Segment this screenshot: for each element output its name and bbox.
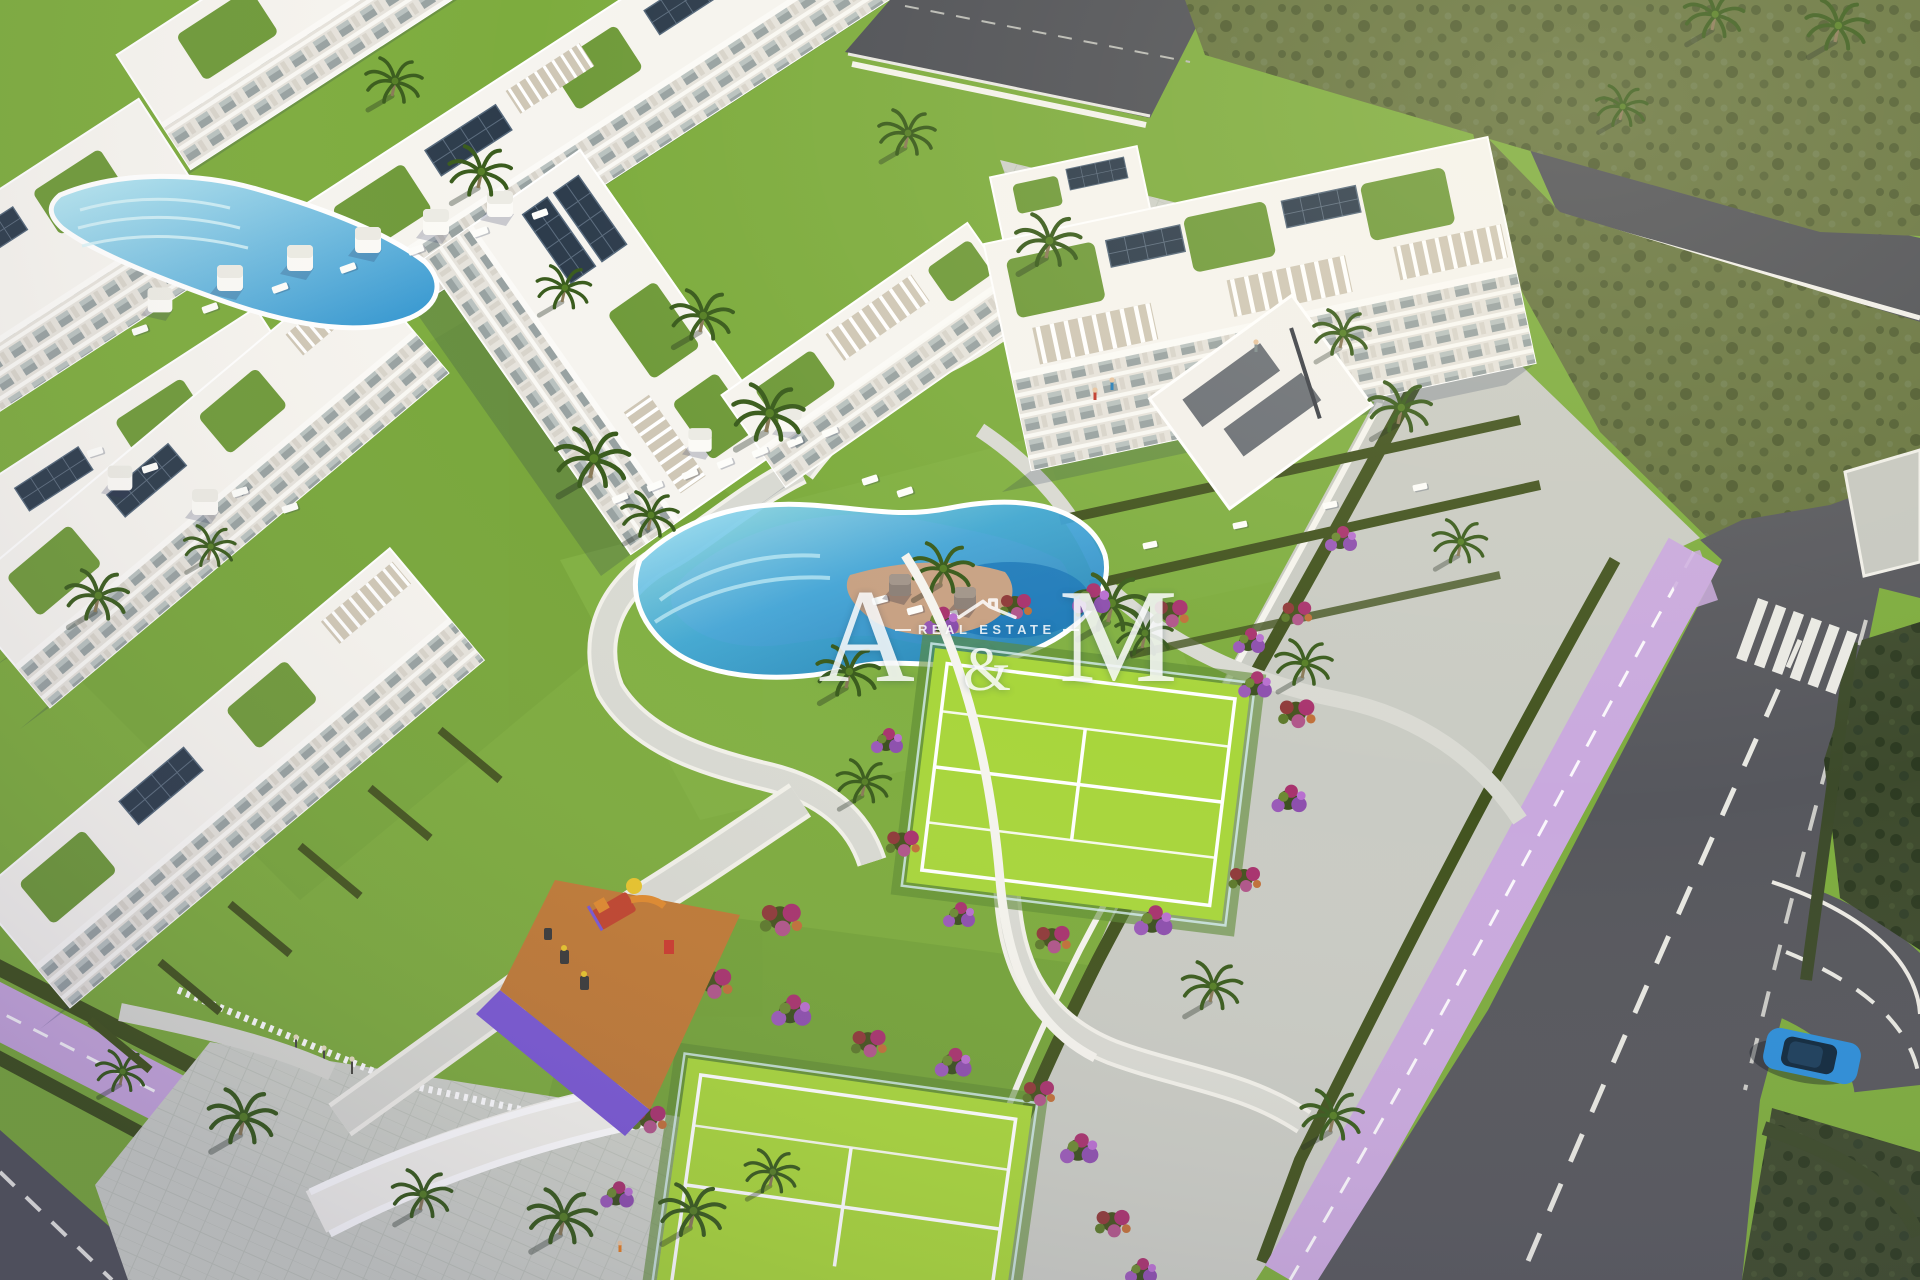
aerial-render-canvas [0,0,1920,1280]
aerial-render: A REAL ESTATE & M [0,0,1920,1280]
light-overlay [0,0,1920,1280]
